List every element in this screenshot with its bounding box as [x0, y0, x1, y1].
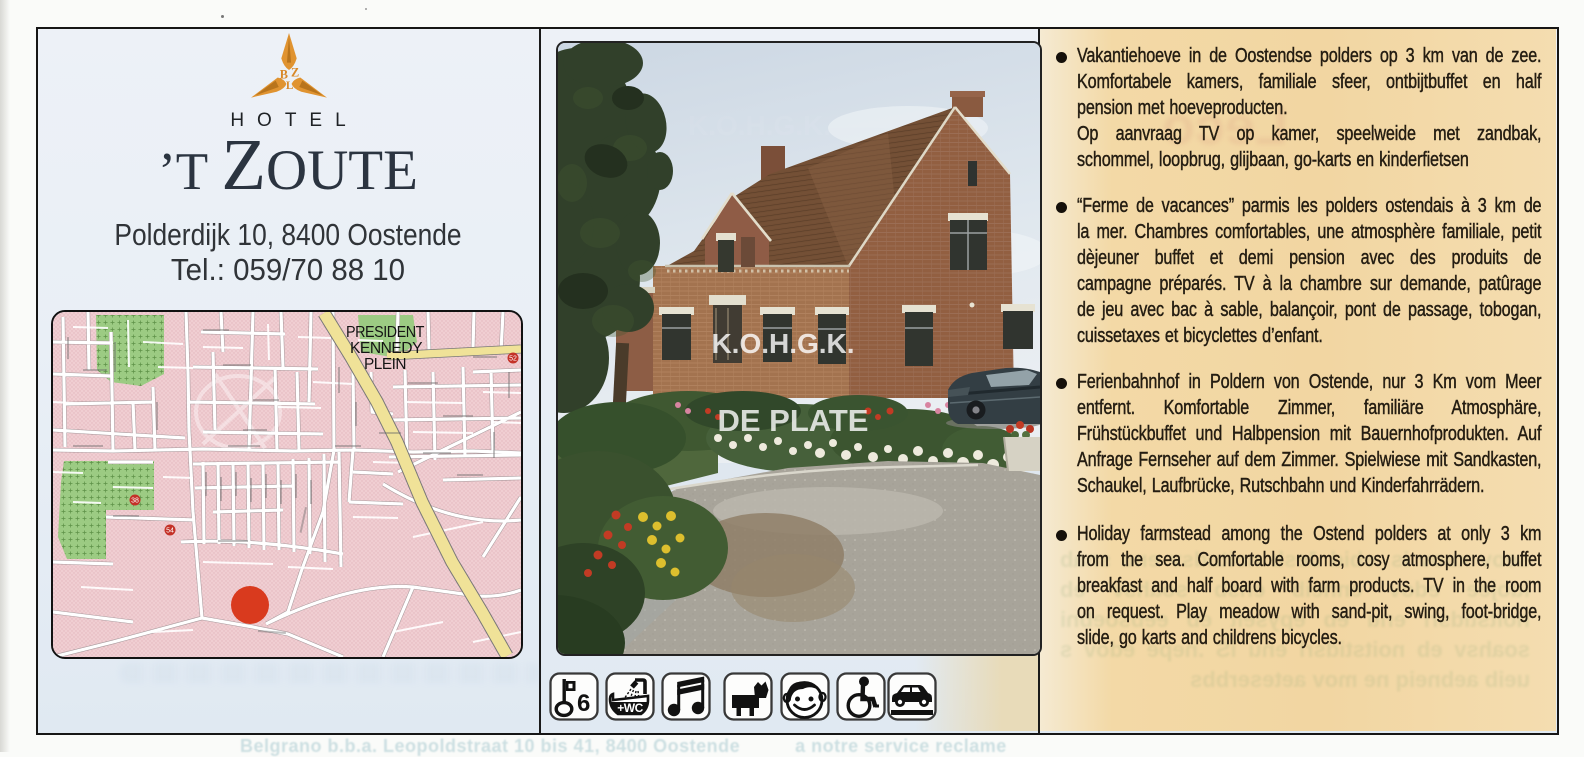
svg-text:+WC: +WC [617, 701, 643, 715]
svg-text:54: 54 [166, 528, 174, 535]
svg-text:DE PLATE: DE PLATE [718, 403, 869, 438]
svg-text:Z: Z [291, 65, 299, 79]
svg-text:K.O.H.G.K.: K.O.H.G.K. [688, 110, 831, 141]
svg-text:PRESIDENT: PRESIDENT [346, 324, 425, 341]
svg-text:PLEIN: PLEIN [364, 356, 406, 373]
svg-text:6: 6 [577, 690, 590, 717]
svg-text:L: L [286, 80, 294, 92]
svg-text:K.O.H.G.K.: K.O.H.G.K. [711, 328, 854, 359]
svg-text:52: 52 [509, 356, 517, 363]
svg-text:38: 38 [131, 498, 139, 505]
svg-text:KENNEDY: KENNEDY [350, 340, 422, 357]
